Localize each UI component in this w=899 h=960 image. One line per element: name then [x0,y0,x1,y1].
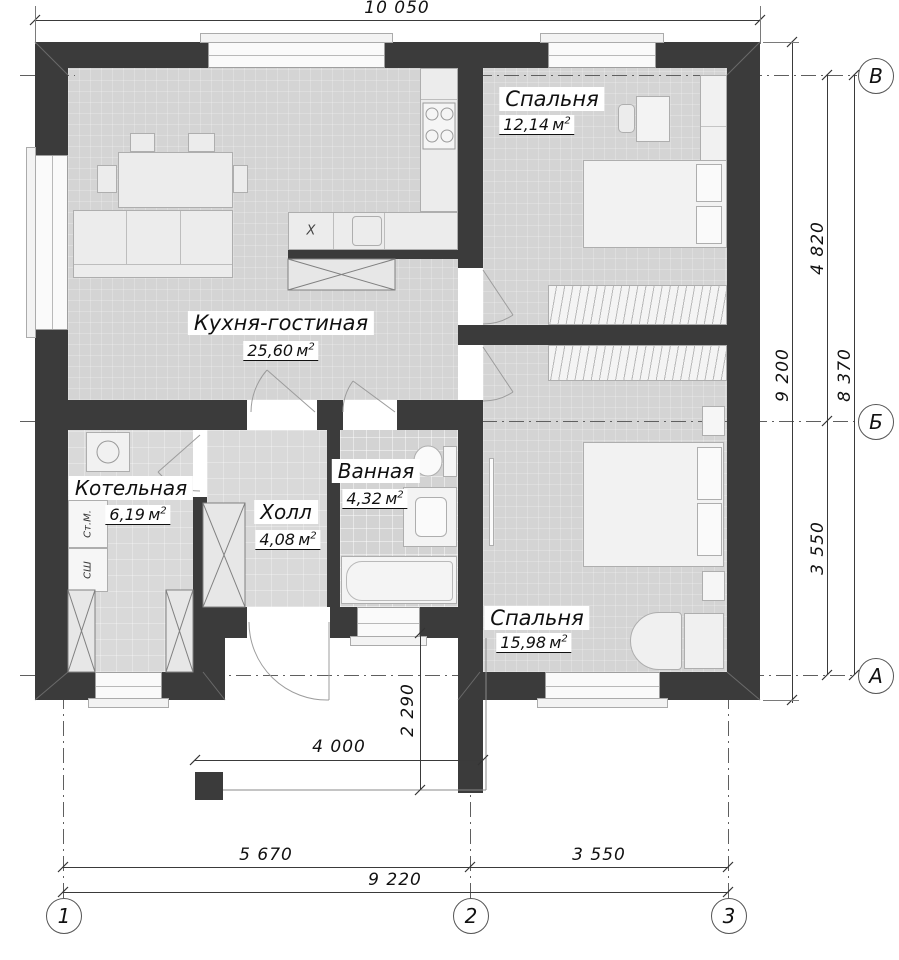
porch-column [195,772,223,800]
bathroom-sink [415,497,447,537]
washing-machine-label: Ст.М. [83,510,94,538]
grid-label-2: 2 [465,904,478,928]
wall-recess-south [203,607,483,638]
room-name-bathroom: Ванная [332,459,420,483]
door-opening-hall [247,400,317,430]
pillow [697,503,722,556]
room-area-bedroom1: 12,14 м2 [499,115,574,135]
room-name-hall: Холл [254,500,318,524]
pillow [696,206,722,244]
area-value: 25,60 [247,341,293,360]
dim-bottom-1-2: 5 670 [239,845,293,865]
boiler-unit [86,432,130,472]
grid-label-B: Б [869,410,883,434]
area-exp: 2 [310,531,316,542]
kitchen-sink [352,216,382,246]
dim-right-overall: 9 200 [773,348,793,402]
desk [636,96,670,142]
grid-bubble-A: А [858,658,894,694]
toilet-tank [443,446,457,477]
window-boiler-south [95,672,162,700]
room-area-hall: 4,08 м2 [255,530,320,550]
grid-label-A: А [869,664,883,688]
desk-chair [618,104,635,133]
grid-bubble-3: 3 [711,898,747,934]
dim-porch-depth: 2 290 [398,683,418,737]
door-opening-bedroom2 [458,345,483,400]
sofa [73,210,233,278]
room-area-bathroom: 4,32 м2 [342,489,407,509]
room-area-boiler: 6,19 м2 [105,505,170,525]
wall-boiler-hall-partition [193,497,207,672]
room-name-bedroom1: Спальня [499,87,604,111]
grid-label-3: 3 [723,904,736,928]
area-value: 6,19 [109,505,145,524]
grid-axis-B-line-right [455,421,857,422]
dining-chair [97,165,117,193]
window-boiler-south-sill [88,698,169,708]
door-opening-boiler [193,433,207,497]
extension-line [760,6,761,44]
extension-line [763,42,799,43]
wall-kitchen-south-c [397,400,458,430]
area-unit: м [298,530,310,549]
nightstand [702,406,725,436]
area-unit: м [296,341,308,360]
bathtub [341,556,457,604]
area-value: 15,98 [500,633,546,652]
nightstand [702,571,725,601]
window-kitchen-north [208,42,385,68]
hood-mark-label: X [307,224,316,239]
wall-center-lower [458,400,483,607]
window-kitchen-north-sill [200,33,393,43]
side-table [684,613,724,669]
kitchen-counter-east [420,68,458,212]
area-unit: м [148,505,160,524]
window-kitchen-west [35,155,68,330]
dining-chair [233,165,248,193]
dim-line-bottom-spans [63,867,728,868]
window-bathroom-south [357,607,420,638]
dim-line-bottom-total [63,892,728,893]
dim-line-porch-width [195,760,483,761]
wall-exterior-right [727,42,760,700]
dim-porch-width: 4 000 [312,737,366,757]
area-value: 4,08 [259,530,295,549]
grid-bubble-2: 2 [453,898,489,934]
floor-plan-canvas: X Ст.М. СШ [0,0,899,960]
window-bedroom1-north [548,42,656,68]
window-bedroom2-south [545,672,660,700]
area-exp: 2 [160,506,166,517]
door-opening-entry [247,607,330,638]
armchair [630,612,682,670]
wall-kitchen-south-b [317,400,343,430]
wardrobe [548,285,727,325]
window-kitchen-west-sill [26,147,36,338]
drying-cabinet-label: СШ [83,561,94,579]
window-bedroom2-south-sill [537,698,668,708]
wardrobe [548,345,727,381]
window-bedroom1-north-sill [540,33,664,43]
dining-chair [188,133,215,152]
room-name-boiler: Котельная [69,476,193,500]
grid-bubble-B: Б [858,404,894,440]
extension-line [763,700,799,701]
dim-top-overall: 10 050 [364,0,429,18]
grid-bubble-1: 1 [46,898,82,934]
area-exp: 2 [397,490,403,501]
room-area-kitchen-living: 25,60 м2 [243,341,318,361]
wall-bedroom-divider [483,325,727,345]
dim-bottom-total: 9 220 [368,870,422,890]
wall-center-middle [458,325,483,345]
dim-right-v-b: 4 820 [808,221,828,275]
dim-right-grid-total: 8 370 [835,348,855,402]
porch-outline [223,638,486,790]
wall-kitchen-south-a [68,400,247,430]
dim-line-right-segments [827,75,828,675]
window-bathroom-south-sill [350,636,427,646]
dining-chair [130,133,155,152]
wall-center-upper [458,68,483,268]
dining-table [118,152,233,208]
grid-label-V: В [869,64,883,88]
area-unit: м [385,489,397,508]
tv-panel [489,458,494,546]
area-value: 4,32 [346,489,382,508]
area-unit: м [549,633,561,652]
grid-axis-V-line-right [450,75,857,76]
wall-exterior-left [35,42,68,700]
door-opening-bathroom [343,400,397,430]
area-unit: м [552,115,564,134]
grid-bubble-V: В [858,58,894,94]
pillow [696,164,722,202]
wall-hall-bath-partition [327,430,340,607]
area-exp: 2 [561,634,567,645]
dim-line-top [35,20,760,21]
room-area-bedroom2: 15,98 м2 [496,633,571,653]
dim-line-porch-depth [420,633,421,790]
pillow [697,447,722,500]
grid-label-1: 1 [58,904,71,928]
room-name-bedroom2: Спальня [484,606,589,630]
wall-porch-right [458,638,483,793]
door-opening-bedroom1 [458,268,483,325]
dim-right-b-a: 3 550 [808,521,828,575]
area-value: 12,14 [503,115,549,134]
room-name-kitchen-living: Кухня-гостиная [188,311,374,335]
extension-line [35,6,36,44]
area-exp: 2 [564,116,570,127]
peninsula-edge [288,250,460,259]
dim-bottom-2-3: 3 550 [572,845,626,865]
area-exp: 2 [308,342,314,353]
